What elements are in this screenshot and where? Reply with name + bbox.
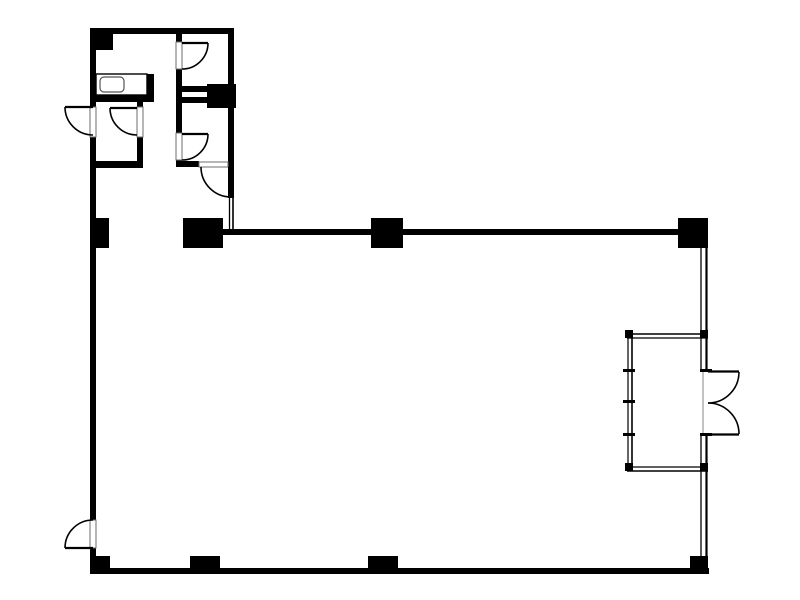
mullion-tick-left-3 [623, 433, 635, 436]
column-bottom-right [690, 556, 708, 573]
column-left-wall-mid [92, 218, 109, 248]
room-e-bottom-wall [176, 161, 199, 167]
column-bottom-mid [368, 556, 398, 573]
door-leaf-room-e-south [228, 167, 234, 198]
column-hall-top-right [678, 218, 708, 248]
door-frame-exterior-lower-left [90, 520, 96, 548]
floorplan-canvas [0, 0, 800, 600]
fixtures-layer [96, 74, 147, 95]
room-a-bottom-wall [90, 95, 154, 102]
column-bottom-left [93, 556, 110, 573]
room-divider-lower [176, 97, 207, 103]
mullion-tick-left-2 [623, 400, 635, 403]
room-divider-upper [176, 86, 207, 92]
column-room-divider [207, 84, 236, 108]
counter-end-wall [147, 74, 154, 102]
column-bottom-mid-left [190, 556, 220, 573]
column-hall-corner [183, 218, 223, 248]
kitchen-sink [100, 77, 124, 92]
door-frame-room-d [176, 42, 182, 69]
door-frame-room-b-inner [137, 107, 143, 137]
vestibule-post-sw [625, 463, 633, 471]
mullion-tick-left-1 [623, 369, 635, 372]
column-hall-top-mid [371, 218, 403, 248]
door-frame-room-e-south [199, 162, 228, 167]
vestibule-post-ne [700, 330, 708, 338]
vestibule-post-se [700, 463, 708, 471]
main-hall-top-wall [203, 229, 695, 235]
vestibule-post-nw [625, 330, 633, 338]
floorplan-page [0, 0, 800, 600]
room-b-bottom-wall [90, 161, 143, 168]
door-frame-exterior-upper-left [90, 107, 96, 137]
bottom-wall [90, 568, 709, 574]
column-top-left-corner [94, 33, 113, 50]
door-frame-room-e [176, 133, 182, 160]
